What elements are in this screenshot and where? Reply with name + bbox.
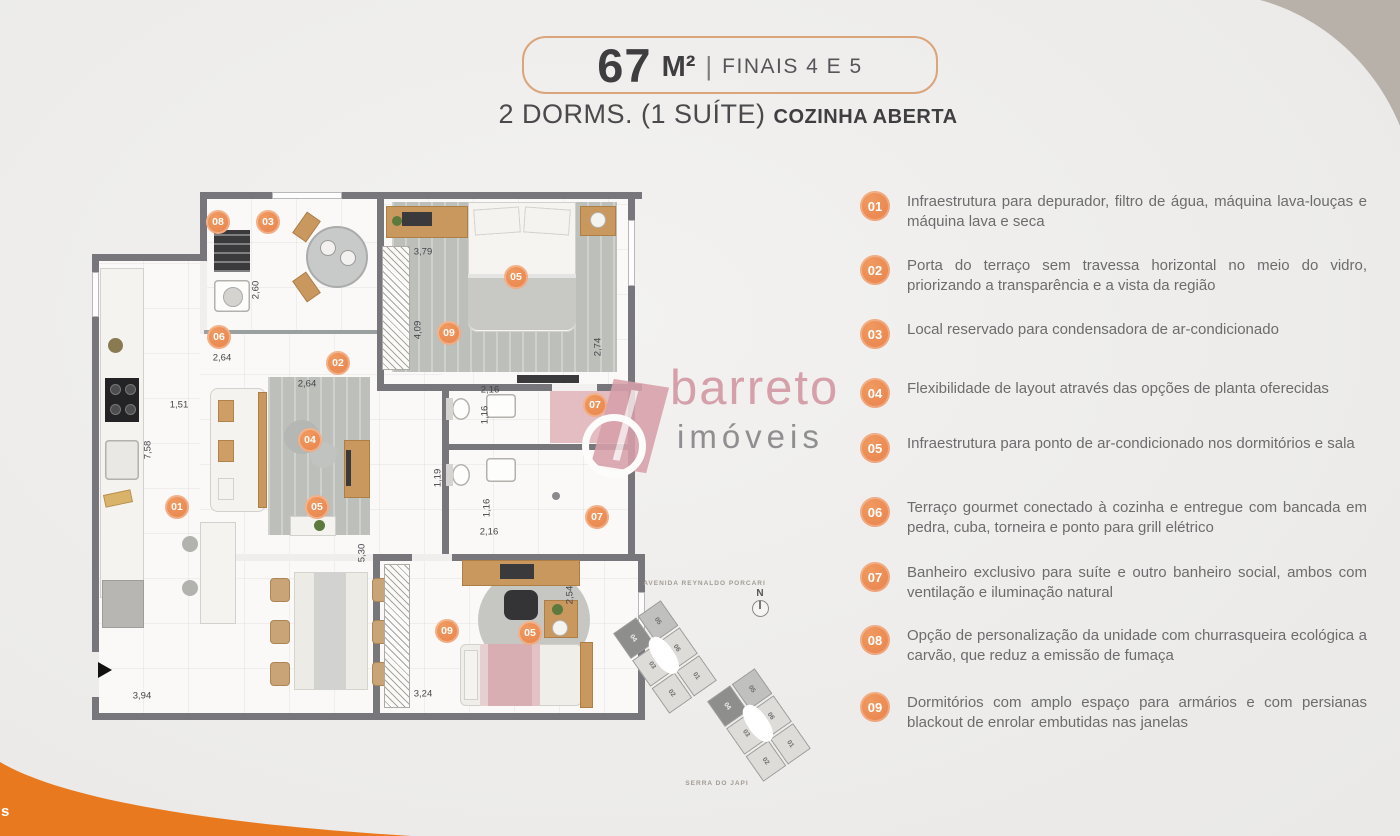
nightstand-lamp bbox=[552, 620, 568, 636]
toilet bbox=[452, 464, 470, 486]
dimension-label: 2,64 bbox=[298, 379, 317, 390]
table-plant bbox=[314, 520, 325, 531]
plan-marker: 05 bbox=[504, 265, 528, 289]
feature-item: 01 Infraestrutura para depurador, filtro… bbox=[860, 191, 1370, 232]
wall bbox=[92, 697, 99, 720]
feature-number-badge: 01 bbox=[860, 191, 890, 221]
pillow bbox=[523, 206, 571, 235]
feature-item: 08 Opção de personalização da unidade co… bbox=[860, 625, 1370, 666]
suite-tv bbox=[402, 212, 432, 226]
counter-plant bbox=[108, 338, 123, 353]
subtitle-kitchen: COZINHA ABERTA bbox=[774, 106, 958, 128]
dining-chair bbox=[270, 662, 290, 686]
feature-item: 07 Banheiro exclusivo para suíte e outro… bbox=[860, 562, 1370, 603]
pillow bbox=[473, 206, 521, 235]
street-label: AVENIDA REYNALDO PORCARI bbox=[622, 580, 787, 587]
dining-chair bbox=[270, 620, 290, 644]
bed2-blanket bbox=[480, 644, 540, 706]
logo-subtitle: imóveis bbox=[677, 418, 824, 456]
table-plate bbox=[340, 250, 356, 266]
dresser-plant bbox=[392, 216, 402, 226]
page: s 67 M² | FINAIS 4 E 5 2 DORMS. (1 SUÍTE… bbox=[0, 0, 1400, 836]
feature-text: Infraestrutura para ponto de ar-condicio… bbox=[907, 434, 1367, 463]
dimension-label: 7,58 bbox=[143, 441, 154, 460]
shower-drain bbox=[552, 492, 560, 500]
bathroom-sink bbox=[486, 394, 516, 418]
suite-tv-rack bbox=[517, 375, 579, 383]
dimension-label: 2,54 bbox=[565, 586, 576, 605]
bed2-headboard bbox=[580, 642, 593, 708]
sofa-frame bbox=[258, 392, 267, 508]
feature-text: Terraço gourmet conectado à cozinha e en… bbox=[907, 498, 1367, 538]
plan-marker: 09 bbox=[435, 619, 459, 643]
site-keyplan: AVENIDA REYNALDO PORCARI N 04 05 03 06 0… bbox=[622, 572, 847, 797]
dimension-label: 2,74 bbox=[593, 338, 604, 357]
toilet-tank bbox=[446, 464, 453, 486]
burner bbox=[110, 384, 121, 395]
logo-name: barreto bbox=[670, 360, 839, 416]
plan-marker: 04 bbox=[298, 428, 322, 452]
feature-item: 02 Porta do terraço sem travessa horizon… bbox=[860, 255, 1370, 296]
bedroom2-wardrobe bbox=[384, 564, 410, 708]
dimension-label: 3,94 bbox=[133, 691, 152, 702]
feature-number-badge: 06 bbox=[860, 497, 890, 527]
area-unit: M² bbox=[662, 53, 696, 82]
feature-item: 03 Local reservado para condensadora de … bbox=[860, 319, 1370, 349]
dimension-label: 4,09 bbox=[413, 321, 424, 340]
separator: | bbox=[705, 51, 712, 82]
terrace-sink-bowl bbox=[223, 287, 243, 307]
toilet-tank bbox=[446, 398, 453, 420]
watermark-logo: barreto imóveis bbox=[580, 358, 890, 478]
kitchen-island bbox=[200, 522, 236, 624]
coffee-table bbox=[290, 516, 336, 536]
monitor bbox=[500, 564, 534, 579]
feature-item: 05 Infraestrutura para ponto de ar-condi… bbox=[860, 433, 1370, 463]
area-value: 67 bbox=[597, 42, 651, 89]
toilet bbox=[452, 398, 470, 420]
corner-decoration-top-right bbox=[1248, 0, 1400, 126]
feature-item: 09 Dormitórios com amplo espaço para arm… bbox=[860, 692, 1370, 733]
sofa-pillow bbox=[218, 400, 234, 422]
terrace-table bbox=[306, 226, 368, 288]
nightstand-lamp bbox=[590, 212, 606, 228]
unit-finals: FINAIS 4 E 5 bbox=[722, 55, 863, 79]
compass-needle bbox=[759, 601, 761, 609]
feature-text: Infraestrutura para depurador, filtro de… bbox=[907, 192, 1367, 232]
kitchen-counter bbox=[100, 268, 144, 598]
feature-number-badge: 08 bbox=[860, 625, 890, 655]
corner-text-fragment: s bbox=[1, 803, 9, 820]
feature-number-badge: 02 bbox=[860, 255, 890, 285]
feature-text: Local reservado para condensadora de ar-… bbox=[907, 320, 1367, 349]
feature-item: 04 Flexibilidade de layout através das o… bbox=[860, 378, 1370, 408]
sofa-pillow bbox=[218, 440, 234, 462]
feature-text: Porta do terraço sem travessa horizontal… bbox=[907, 256, 1367, 296]
nightstand-plant bbox=[552, 604, 563, 615]
feature-number-badge: 07 bbox=[860, 562, 890, 592]
plan-marker: 05 bbox=[518, 621, 542, 645]
suite-window bbox=[628, 220, 635, 286]
table-plate bbox=[320, 240, 336, 256]
subtitle-dorms: 2 DORMS. (1 SUÍTE) bbox=[498, 99, 773, 129]
dimension-label: 5,30 bbox=[357, 544, 368, 563]
building-tower-1: 04 05 03 06 02 01 bbox=[613, 600, 717, 714]
feature-number-badge: 09 bbox=[860, 692, 890, 722]
terrace-window bbox=[272, 192, 342, 199]
plan-marker: 09 bbox=[437, 321, 461, 345]
stool bbox=[182, 536, 198, 552]
feature-item: 06 Terraço gourmet conectado à cozinha e… bbox=[860, 497, 1370, 538]
feature-text: Opção de personalização da unidade com c… bbox=[907, 626, 1367, 666]
wall bbox=[92, 254, 207, 261]
plan-marker: 05 bbox=[305, 495, 329, 519]
suite-wardrobe bbox=[382, 246, 410, 370]
dimension-label: 3,24 bbox=[414, 689, 433, 700]
dimension-label: 1,16 bbox=[480, 406, 491, 425]
table-runner bbox=[314, 572, 346, 690]
compass-icon bbox=[752, 600, 769, 617]
burner bbox=[125, 384, 136, 395]
features-list: 01 Infraestrutura para depurador, filtro… bbox=[860, 178, 1372, 758]
mountain-label: SERRA DO JAPI bbox=[652, 780, 782, 787]
corner-decoration-bottom-left bbox=[0, 762, 412, 836]
tv bbox=[346, 450, 351, 486]
kitchen-sink bbox=[105, 440, 139, 480]
dimension-label: 2,16 bbox=[481, 385, 500, 396]
wall bbox=[92, 713, 645, 720]
plan-marker: 08 bbox=[206, 210, 230, 234]
plan-marker: 06 bbox=[207, 325, 231, 349]
plan-marker: 02 bbox=[326, 351, 350, 375]
area-badge: 67 M² | FINAIS 4 E 5 bbox=[522, 36, 938, 94]
sofa-pillow bbox=[218, 478, 234, 500]
dimension-label: 1,51 bbox=[170, 400, 189, 411]
plan-marker: 03 bbox=[256, 210, 280, 234]
grill-counter bbox=[214, 230, 250, 272]
dimension-label: 1,16 bbox=[482, 499, 493, 518]
burner bbox=[125, 404, 136, 415]
feature-text: Dormitórios com amplo espaço para armári… bbox=[907, 693, 1367, 733]
compass-label: N bbox=[750, 588, 770, 599]
burner bbox=[110, 404, 121, 415]
appliance bbox=[102, 580, 144, 628]
plan-marker: 01 bbox=[165, 495, 189, 519]
floor-plan: 2,60 2,64 2,64 1,51 7,58 3,79 4,09 2,74 … bbox=[92, 192, 648, 722]
wall bbox=[200, 192, 642, 199]
plan-subtitle: 2 DORMS. (1 SUÍTE) COZINHA ABERTA bbox=[452, 99, 1004, 130]
logo-ring-icon bbox=[582, 414, 646, 478]
building-tower-2: 04 05 03 06 02 01 bbox=[707, 668, 811, 782]
bathroom-sink bbox=[486, 458, 516, 482]
dimension-label: 3,79 bbox=[414, 247, 433, 258]
feature-text: Banheiro exclusivo para suíte e outro ba… bbox=[907, 563, 1367, 603]
feature-text: Flexibilidade de layout através das opçõ… bbox=[907, 379, 1367, 408]
dimension-label: 2,60 bbox=[251, 281, 262, 300]
dimension-label: 2,64 bbox=[213, 353, 232, 364]
plan-marker: 07 bbox=[585, 505, 609, 529]
desk-chair bbox=[504, 590, 538, 620]
wall bbox=[373, 554, 412, 561]
dimension-label: 1,19 bbox=[433, 469, 444, 488]
bed2-pillow bbox=[464, 650, 478, 700]
stool bbox=[182, 580, 198, 596]
kitchen-window bbox=[92, 272, 99, 317]
dimension-label: 2,16 bbox=[480, 527, 499, 538]
entry-arrow-icon bbox=[98, 662, 112, 678]
feature-number-badge: 03 bbox=[860, 319, 890, 349]
dining-chair bbox=[270, 578, 290, 602]
wall bbox=[377, 384, 552, 391]
